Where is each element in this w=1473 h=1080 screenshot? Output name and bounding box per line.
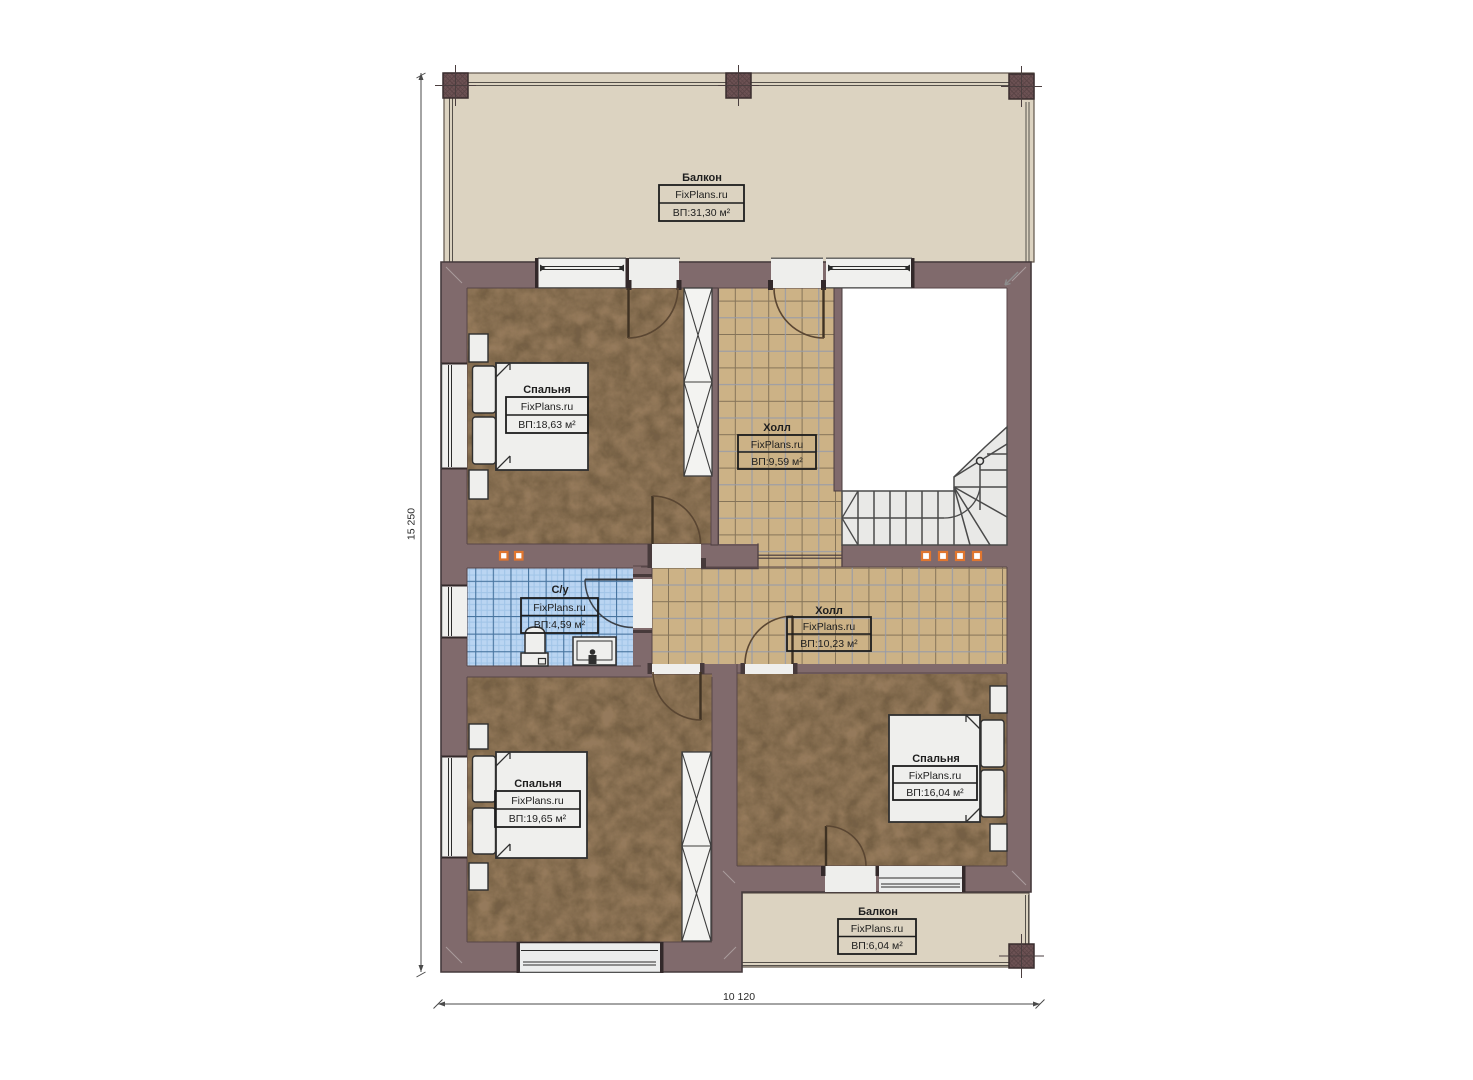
- svg-text:Балкон: Балкон: [858, 906, 898, 918]
- svg-text:ВП:4,59 м²: ВП:4,59 м²: [534, 619, 586, 631]
- svg-text:Холл: Холл: [763, 422, 791, 434]
- svg-text:FixPlans.ru: FixPlans.ru: [675, 189, 728, 201]
- svg-text:FixPlans.ru: FixPlans.ru: [533, 602, 586, 614]
- svg-text:FixPlans.ru: FixPlans.ru: [851, 923, 904, 935]
- svg-text:ВП:19,65 м²: ВП:19,65 м²: [509, 813, 567, 825]
- svg-text:15 250: 15 250: [406, 508, 418, 540]
- svg-text:FixPlans.ru: FixPlans.ru: [521, 401, 574, 413]
- svg-text:ВП:6,04 м²: ВП:6,04 м²: [851, 940, 903, 952]
- svg-text:FixPlans.ru: FixPlans.ru: [803, 621, 856, 633]
- svg-text:Спальня: Спальня: [912, 753, 960, 765]
- svg-text:ВП:31,30 м²: ВП:31,30 м²: [673, 207, 731, 219]
- svg-text:ВП:10,23 м²: ВП:10,23 м²: [800, 638, 858, 650]
- svg-text:Балкон: Балкон: [682, 172, 722, 184]
- svg-text:Спальня: Спальня: [514, 778, 562, 790]
- svg-text:ВП:16,04 м²: ВП:16,04 м²: [906, 787, 964, 799]
- svg-text:Спальня: Спальня: [523, 384, 571, 396]
- svg-text:FixPlans.ru: FixPlans.ru: [511, 795, 564, 807]
- svg-text:Холл: Холл: [815, 605, 843, 617]
- svg-text:ВП:9,59 м²: ВП:9,59 м²: [751, 456, 803, 468]
- svg-text:FixPlans.ru: FixPlans.ru: [909, 770, 962, 782]
- svg-text:ВП:18,63 м²: ВП:18,63 м²: [518, 419, 576, 431]
- svg-text:FixPlans.ru: FixPlans.ru: [751, 439, 804, 451]
- svg-text:10 120: 10 120: [723, 991, 755, 1003]
- svg-text:С/у: С/у: [551, 584, 569, 596]
